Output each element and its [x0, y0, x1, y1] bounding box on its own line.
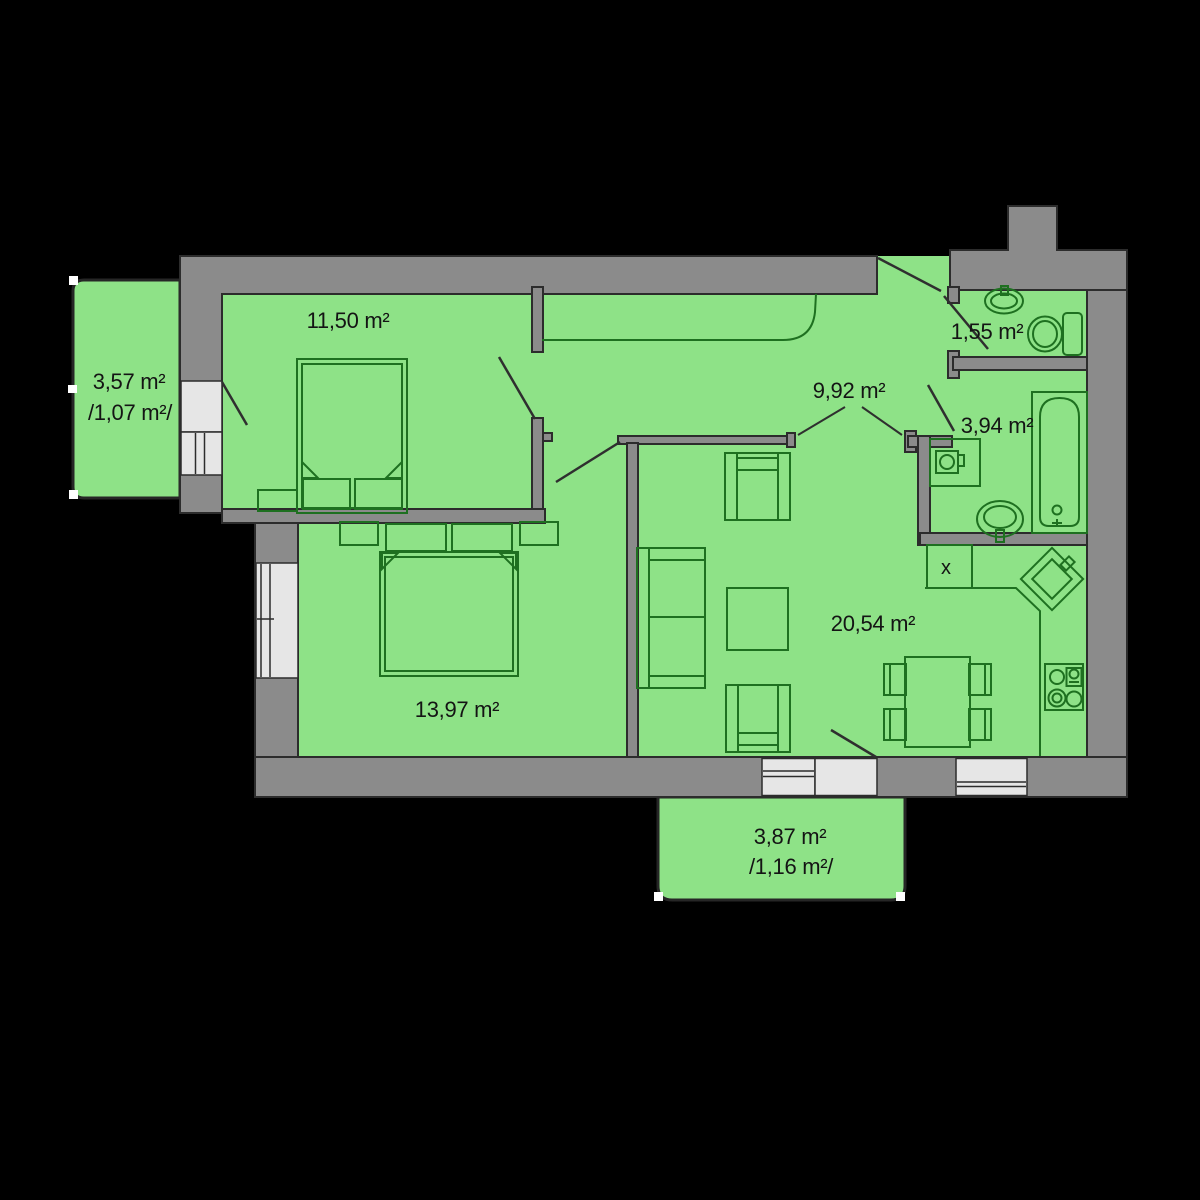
floor-plan-image: x: [0, 0, 1200, 1200]
area-label-living-room: 20,54 m²: [831, 613, 915, 635]
window-living-room-left: [762, 759, 815, 796]
area-label-balcony-bottom-secondary: /1,16 m²/: [749, 856, 833, 878]
area-label-balcony-bottom: 3,87 m²: [754, 826, 826, 848]
area-label-balcony-left: 3,57 m²: [93, 371, 165, 393]
area-label-bathroom: 3,94 m²: [961, 415, 1033, 437]
area-label-balcony-left-secondary: /1,07 m²/: [88, 402, 172, 424]
floor-plan-drawing: x: [0, 0, 1200, 1200]
area-label-hallway: 9,92 m²: [813, 380, 885, 402]
balcony-door-bedroom-1: [181, 381, 222, 432]
balcony-bottom-area: [654, 797, 905, 901]
window-bedroom-1: [181, 432, 222, 475]
shaft-x-label: x: [941, 557, 951, 579]
window-living-room-right: [956, 759, 1027, 796]
area-label-bedroom-1: 11,50 m²: [307, 310, 390, 332]
window-bedroom-2: [256, 563, 298, 678]
area-label-wc: 1,55 m²: [951, 321, 1023, 343]
balcony-door-living-room: [815, 759, 877, 796]
area-label-bedroom-2: 13,97 m²: [415, 699, 499, 721]
